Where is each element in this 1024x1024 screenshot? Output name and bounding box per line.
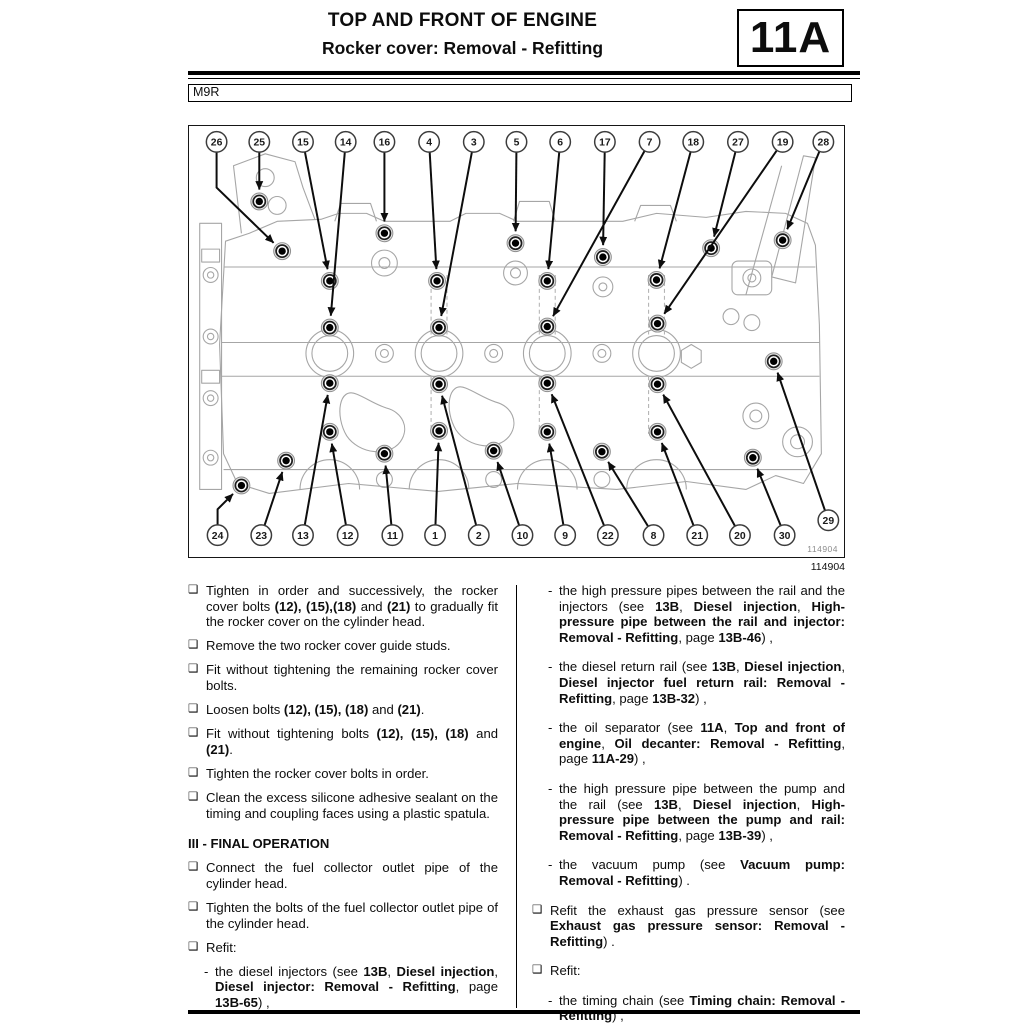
body-text: Refit: bbox=[550, 963, 581, 978]
leader-line-13 bbox=[303, 395, 328, 535]
callout-number: 3 bbox=[471, 138, 477, 149]
leader-line-28 bbox=[787, 142, 823, 229]
item-text: Fit without tightening bolts (12), (15),… bbox=[206, 726, 498, 757]
body-text: and bbox=[356, 599, 387, 614]
leader-line-15 bbox=[303, 142, 328, 269]
item-text: Tighten the rocker cover bolts in order. bbox=[206, 766, 429, 781]
callout-number: 20 bbox=[734, 531, 746, 542]
column-divider bbox=[516, 585, 517, 1008]
reference-text: (21) bbox=[206, 742, 229, 757]
body-text: Loosen bolts bbox=[206, 702, 284, 717]
item-text: the vacuum pump (see Vacuum pump: Remova… bbox=[559, 857, 845, 888]
leader-line-26 bbox=[217, 142, 274, 243]
bolt-5 bbox=[507, 235, 524, 252]
left-item-4: ❑Loosen bolts (12), (15), (18) and (21). bbox=[188, 702, 498, 718]
bolt-6 bbox=[539, 272, 556, 289]
reference-text: 11A bbox=[700, 720, 723, 735]
body-text: , bbox=[797, 797, 812, 812]
manual-page: TOP AND FRONT OF ENGINE Rocker cover: Re… bbox=[0, 0, 1024, 1024]
left-item-2: ❑Remove the two rocker cover guide studs… bbox=[188, 638, 498, 654]
body-text: . bbox=[229, 742, 233, 757]
callout-number: 29 bbox=[823, 516, 835, 527]
reference-text: 13B-32 bbox=[652, 691, 695, 706]
bolt-16 bbox=[376, 225, 393, 242]
callout-number: 10 bbox=[517, 531, 529, 542]
bolt-18 bbox=[648, 271, 665, 288]
body-text: Connect the fuel collector outlet pipe o… bbox=[206, 860, 498, 891]
left-item-12: -the diesel injectors (see 13B, Diesel i… bbox=[188, 964, 498, 1011]
callout-5: 5 bbox=[506, 132, 526, 152]
body-text: Clean the excess silicone adhesive seala… bbox=[206, 790, 498, 821]
reference-text: 13B-46 bbox=[718, 630, 761, 645]
item-text: Tighten the bolts of the fuel collector … bbox=[206, 900, 498, 931]
bullet-square-icon: ❑ bbox=[188, 702, 198, 718]
left-item-6: ❑Tighten the rocker cover bolts in order… bbox=[188, 766, 498, 782]
callout-2: 2 bbox=[469, 525, 489, 545]
body-text: , page bbox=[678, 630, 718, 645]
dash-marker: - bbox=[548, 857, 552, 873]
bolt-1 bbox=[431, 422, 448, 439]
callout-14: 14 bbox=[335, 132, 355, 152]
item-text: the high pressure pipe between the pump … bbox=[559, 781, 845, 843]
body-text: , page bbox=[612, 691, 652, 706]
body-text: the vacuum pump (see bbox=[559, 857, 740, 872]
right-item-7: ❑Refit: bbox=[532, 963, 845, 979]
page-header: TOP AND FRONT OF ENGINE Rocker cover: Re… bbox=[188, 10, 737, 59]
callout-7: 7 bbox=[639, 132, 659, 152]
callout-number: 30 bbox=[779, 531, 791, 542]
callout-number: 27 bbox=[732, 138, 744, 149]
callout-10: 10 bbox=[512, 525, 532, 545]
reference-text: Diesel injection bbox=[694, 599, 797, 614]
item-text: III - FINAL OPERATION bbox=[188, 836, 329, 851]
leader-line-21 bbox=[662, 443, 697, 535]
callout-15: 15 bbox=[293, 132, 313, 152]
reference-text: 13B-39 bbox=[718, 828, 761, 843]
bullet-square-icon: ❑ bbox=[188, 726, 198, 742]
callout-number: 13 bbox=[297, 531, 309, 542]
bullet-square-icon: ❑ bbox=[188, 900, 198, 916]
callout-24: 24 bbox=[207, 525, 227, 545]
body-text: , bbox=[724, 720, 735, 735]
body-text: , bbox=[678, 797, 693, 812]
callout-29: 29 bbox=[818, 510, 838, 530]
callout-4: 4 bbox=[419, 132, 439, 152]
callout-number: 23 bbox=[255, 531, 267, 542]
body-text: , page bbox=[678, 828, 718, 843]
bolt-14 bbox=[321, 319, 338, 336]
callout-1: 1 bbox=[425, 525, 445, 545]
item-text: Clean the excess silicone adhesive seala… bbox=[206, 790, 498, 821]
callout-number: 9 bbox=[562, 531, 568, 542]
callout-number: 12 bbox=[342, 531, 354, 542]
right-item-5: -the vacuum pump (see Vacuum pump: Remov… bbox=[532, 857, 845, 888]
reference-text: Diesel injection bbox=[693, 797, 797, 812]
callout-number: 16 bbox=[379, 138, 391, 149]
right-item-1: -the high pressure pipes between the rai… bbox=[532, 583, 845, 645]
callout-number: 11 bbox=[387, 531, 398, 542]
bolt-21 bbox=[649, 423, 666, 440]
reference-text: 13B bbox=[712, 659, 736, 674]
body-text: , bbox=[841, 659, 845, 674]
callout-6: 6 bbox=[550, 132, 570, 152]
bolt-layer bbox=[233, 193, 791, 494]
leader-line-27 bbox=[714, 142, 738, 237]
reference-text: 13B bbox=[655, 599, 679, 614]
body-text: , bbox=[797, 599, 812, 614]
callout-13: 13 bbox=[293, 525, 313, 545]
body-text: , page bbox=[456, 979, 498, 994]
bolt-20 bbox=[649, 376, 666, 393]
body-text: Refit the exhaust gas pressure sensor (s… bbox=[550, 903, 845, 918]
callout-number: 2 bbox=[476, 531, 482, 542]
right-item-4: -the high pressure pipe between the pump… bbox=[532, 781, 845, 843]
leader-line-8 bbox=[608, 462, 653, 535]
body-text: ) , bbox=[761, 630, 773, 645]
callout-16: 16 bbox=[374, 132, 394, 152]
bolt-3 bbox=[431, 319, 448, 336]
dash-marker: - bbox=[548, 720, 552, 736]
item-text: Refit the exhaust gas pressure sensor (s… bbox=[550, 903, 845, 949]
leader-line-20 bbox=[663, 395, 740, 535]
item-text: the diesel injectors (see 13B, Diesel in… bbox=[215, 964, 498, 1010]
callout-25: 25 bbox=[249, 132, 269, 152]
callout-27: 27 bbox=[728, 132, 748, 152]
bolt-9 bbox=[539, 423, 556, 440]
bullet-square-icon: ❑ bbox=[188, 638, 198, 654]
body-text: the diesel injectors (see bbox=[215, 964, 363, 979]
bolt-10 bbox=[485, 442, 502, 459]
callout-number: 1 bbox=[432, 531, 438, 542]
dash-marker: - bbox=[548, 659, 552, 675]
leader-line-22 bbox=[552, 394, 608, 535]
figure-frame: 2625151416435617718271928242313121112109… bbox=[188, 125, 845, 558]
left-item-3: ❑Fit without tightening the remaining ro… bbox=[188, 662, 498, 693]
bolt-19 bbox=[649, 315, 666, 332]
callout-number: 28 bbox=[818, 138, 830, 149]
bullet-square-icon: ❑ bbox=[188, 583, 198, 599]
leader-line-12 bbox=[332, 444, 348, 536]
bolt-30 bbox=[744, 449, 761, 466]
bolt-2 bbox=[431, 376, 448, 393]
header-rule-thin bbox=[188, 78, 860, 79]
reference-text: (21) bbox=[387, 599, 410, 614]
body-text: Remove the two rocker cover guide studs. bbox=[206, 638, 451, 653]
dash-marker: - bbox=[548, 583, 552, 599]
bolt-12 bbox=[321, 423, 338, 440]
bullet-square-icon: ❑ bbox=[188, 766, 198, 782]
footer-rule bbox=[188, 1010, 860, 1014]
callout-8: 8 bbox=[643, 525, 663, 545]
item-text: Refit: bbox=[206, 940, 237, 955]
engine-code-label: M9R bbox=[193, 85, 219, 99]
item-text: Tighten in order and successively, the r… bbox=[206, 583, 498, 629]
item-text: Refit: bbox=[550, 963, 581, 978]
item-text: Remove the two rocker cover guide studs. bbox=[206, 638, 451, 653]
bolt-23 bbox=[278, 452, 295, 469]
callout-number: 25 bbox=[254, 138, 266, 149]
body-text: ) . bbox=[603, 934, 615, 949]
body-text: and bbox=[368, 702, 397, 717]
reference-text: 13B bbox=[363, 964, 387, 979]
body-text: Tighten the rocker cover bolts in order. bbox=[206, 766, 429, 781]
item-text: Connect the fuel collector outlet pipe o… bbox=[206, 860, 498, 891]
bullet-square-icon: ❑ bbox=[188, 662, 198, 678]
item-text: the diesel return rail (see 13B, Diesel … bbox=[559, 659, 845, 705]
body-text: , bbox=[679, 599, 694, 614]
callout-number: 22 bbox=[602, 531, 614, 542]
header-rule-thick bbox=[188, 71, 860, 75]
callout-17: 17 bbox=[595, 132, 615, 152]
bolt-8 bbox=[593, 443, 610, 460]
leader-line-5 bbox=[516, 142, 517, 231]
leader-line-2 bbox=[442, 396, 479, 535]
callout-11: 11 bbox=[382, 525, 402, 545]
callout-number: 18 bbox=[687, 138, 699, 149]
rocker-cover-diagram: 2625151416435617718271928242313121112109… bbox=[189, 126, 843, 556]
engine-line-art bbox=[200, 154, 822, 494]
bullet-square-icon: ❑ bbox=[188, 940, 198, 956]
callout-number: 6 bbox=[557, 138, 563, 149]
callout-26: 26 bbox=[206, 132, 226, 152]
leader-line-3 bbox=[441, 142, 474, 316]
reference-text: 13B bbox=[654, 797, 678, 812]
right-item-2: -the diesel return rail (see 13B, Diesel… bbox=[532, 659, 845, 706]
page-subtitle: Rocker cover: Removal - Refitting bbox=[188, 38, 737, 59]
page-title: TOP AND FRONT OF ENGINE bbox=[188, 10, 737, 32]
bolt-22 bbox=[539, 375, 556, 392]
left-item-10: ❑Tighten the bolts of the fuel collector… bbox=[188, 900, 498, 931]
left-item-7: ❑Clean the excess silicone adhesive seal… bbox=[188, 790, 498, 821]
callout-number: 5 bbox=[514, 138, 520, 149]
reference-text: Diesel injector: Removal - Refitting bbox=[215, 979, 456, 994]
right-item-3: -the oil separator (see 11A, Top and fro… bbox=[532, 720, 845, 767]
leader-line-14 bbox=[331, 142, 346, 316]
leader-line-4 bbox=[429, 142, 436, 269]
bullet-square-icon: ❑ bbox=[532, 963, 542, 979]
bolt-24 bbox=[233, 477, 250, 494]
body-text: ) , bbox=[258, 995, 270, 1010]
item-text: the oil separator (see 11A, Top and fron… bbox=[559, 720, 845, 766]
left-item-8: III - FINAL OPERATION bbox=[188, 836, 498, 852]
callout-23: 23 bbox=[251, 525, 271, 545]
body-text: Fit without tightening bolts bbox=[206, 726, 377, 741]
callout-19: 19 bbox=[772, 132, 792, 152]
reference-text: 13B-65 bbox=[215, 995, 258, 1010]
body-text: , bbox=[387, 964, 396, 979]
body-text: . bbox=[421, 702, 425, 717]
right-item-8: -the timing chain (see Timing chain: Rem… bbox=[532, 993, 845, 1024]
dash-marker: - bbox=[204, 964, 208, 980]
bolt-11 bbox=[376, 445, 393, 462]
reference-text: Oil decanter: Removal - Refitting bbox=[614, 736, 841, 751]
engine-code-box: M9R bbox=[188, 84, 852, 102]
left-item-5: ❑Fit without tightening bolts (12), (15)… bbox=[188, 726, 498, 757]
callout-20: 20 bbox=[730, 525, 750, 545]
left-item-11: ❑Refit: bbox=[188, 940, 498, 956]
item-text: the high pressure pipes between the rail… bbox=[559, 583, 845, 645]
callout-number: 21 bbox=[691, 531, 703, 542]
body-text: ) . bbox=[678, 873, 690, 888]
bolt-7 bbox=[539, 318, 556, 335]
reference-text: (12), (15), (18) bbox=[377, 726, 469, 741]
callout-21: 21 bbox=[687, 525, 707, 545]
bolt-13 bbox=[321, 375, 338, 392]
bullet-square-icon: ❑ bbox=[188, 790, 198, 806]
dash-marker: - bbox=[548, 781, 552, 797]
bolt-17 bbox=[594, 249, 611, 266]
reference-text: (12), (15), (18) bbox=[284, 702, 368, 717]
body-text: ) , bbox=[695, 691, 707, 706]
bullet-square-icon: ❑ bbox=[188, 860, 198, 876]
figure-number-inside: 114904 bbox=[807, 544, 838, 554]
reference-text: Diesel injection bbox=[744, 659, 841, 674]
callout-9: 9 bbox=[555, 525, 575, 545]
left-item-1: ❑Tighten in order and successively, the … bbox=[188, 583, 498, 630]
callout-30: 30 bbox=[774, 525, 794, 545]
callout-18: 18 bbox=[683, 132, 703, 152]
leader-line-1 bbox=[435, 443, 439, 535]
body-text: Fit without tightening the remaining roc… bbox=[206, 662, 498, 693]
section-code-box: 11A bbox=[737, 9, 844, 67]
callout-number: 8 bbox=[651, 531, 657, 542]
bullet-square-icon: ❑ bbox=[532, 903, 542, 919]
right-item-6: ❑Refit the exhaust gas pressure sensor (… bbox=[532, 903, 845, 950]
leader-line-17 bbox=[603, 142, 605, 245]
callout-number: 26 bbox=[211, 138, 223, 149]
body-text: ) , bbox=[761, 828, 773, 843]
body-text: III - FINAL OPERATION bbox=[188, 836, 329, 851]
callout-number: 17 bbox=[599, 138, 611, 149]
leader-line-10 bbox=[498, 462, 523, 535]
bolt-28 bbox=[774, 232, 791, 249]
callout-number: 7 bbox=[647, 138, 653, 149]
right-text-column: -the high pressure pipes between the rai… bbox=[532, 583, 845, 1024]
callout-22: 22 bbox=[598, 525, 618, 545]
left-item-9: ❑Connect the fuel collector outlet pipe … bbox=[188, 860, 498, 891]
item-text: Fit without tightening the remaining roc… bbox=[206, 662, 498, 693]
body-text: and bbox=[469, 726, 498, 741]
bolt-4 bbox=[429, 272, 446, 289]
callout-number: 24 bbox=[212, 531, 224, 542]
callout-number: 15 bbox=[297, 138, 309, 149]
callout-number: 4 bbox=[426, 138, 432, 149]
bolt-25 bbox=[251, 193, 268, 210]
body-text: , bbox=[494, 964, 498, 979]
body-text: the diesel return rail (see bbox=[559, 659, 712, 674]
callout-number: 19 bbox=[777, 138, 789, 149]
bolt-15 bbox=[321, 272, 338, 289]
reference-text: (12), (15),(18) bbox=[275, 599, 357, 614]
reference-text: Diesel injection bbox=[397, 964, 495, 979]
bolt-26 bbox=[274, 243, 291, 260]
reference-text: Exhaust gas pressure sensor: Removal - R… bbox=[550, 918, 845, 949]
body-text: , bbox=[601, 736, 614, 751]
body-text: Refit: bbox=[206, 940, 237, 955]
reference-text: (21) bbox=[397, 702, 420, 717]
callout-number: 14 bbox=[340, 138, 352, 149]
body-text: ) , bbox=[634, 751, 646, 766]
reference-text: 11A-29 bbox=[592, 751, 634, 766]
body-text: the timing chain (see bbox=[559, 993, 689, 1008]
item-text: Loosen bolts (12), (15), (18) and (21). bbox=[206, 702, 424, 717]
callout-3: 3 bbox=[464, 132, 484, 152]
bolt-29 bbox=[765, 353, 782, 370]
item-text: the timing chain (see Timing chain: Remo… bbox=[559, 993, 845, 1024]
body-text: the oil separator (see bbox=[559, 720, 700, 735]
callout-12: 12 bbox=[337, 525, 357, 545]
figure-number-caption: 114904 bbox=[188, 561, 845, 573]
dash-marker: - bbox=[548, 993, 552, 1009]
callout-28: 28 bbox=[813, 132, 833, 152]
leader-line-9 bbox=[549, 444, 565, 536]
left-text-column: ❑Tighten in order and successively, the … bbox=[188, 583, 498, 1019]
body-text: Tighten the bolts of the fuel collector … bbox=[206, 900, 498, 931]
